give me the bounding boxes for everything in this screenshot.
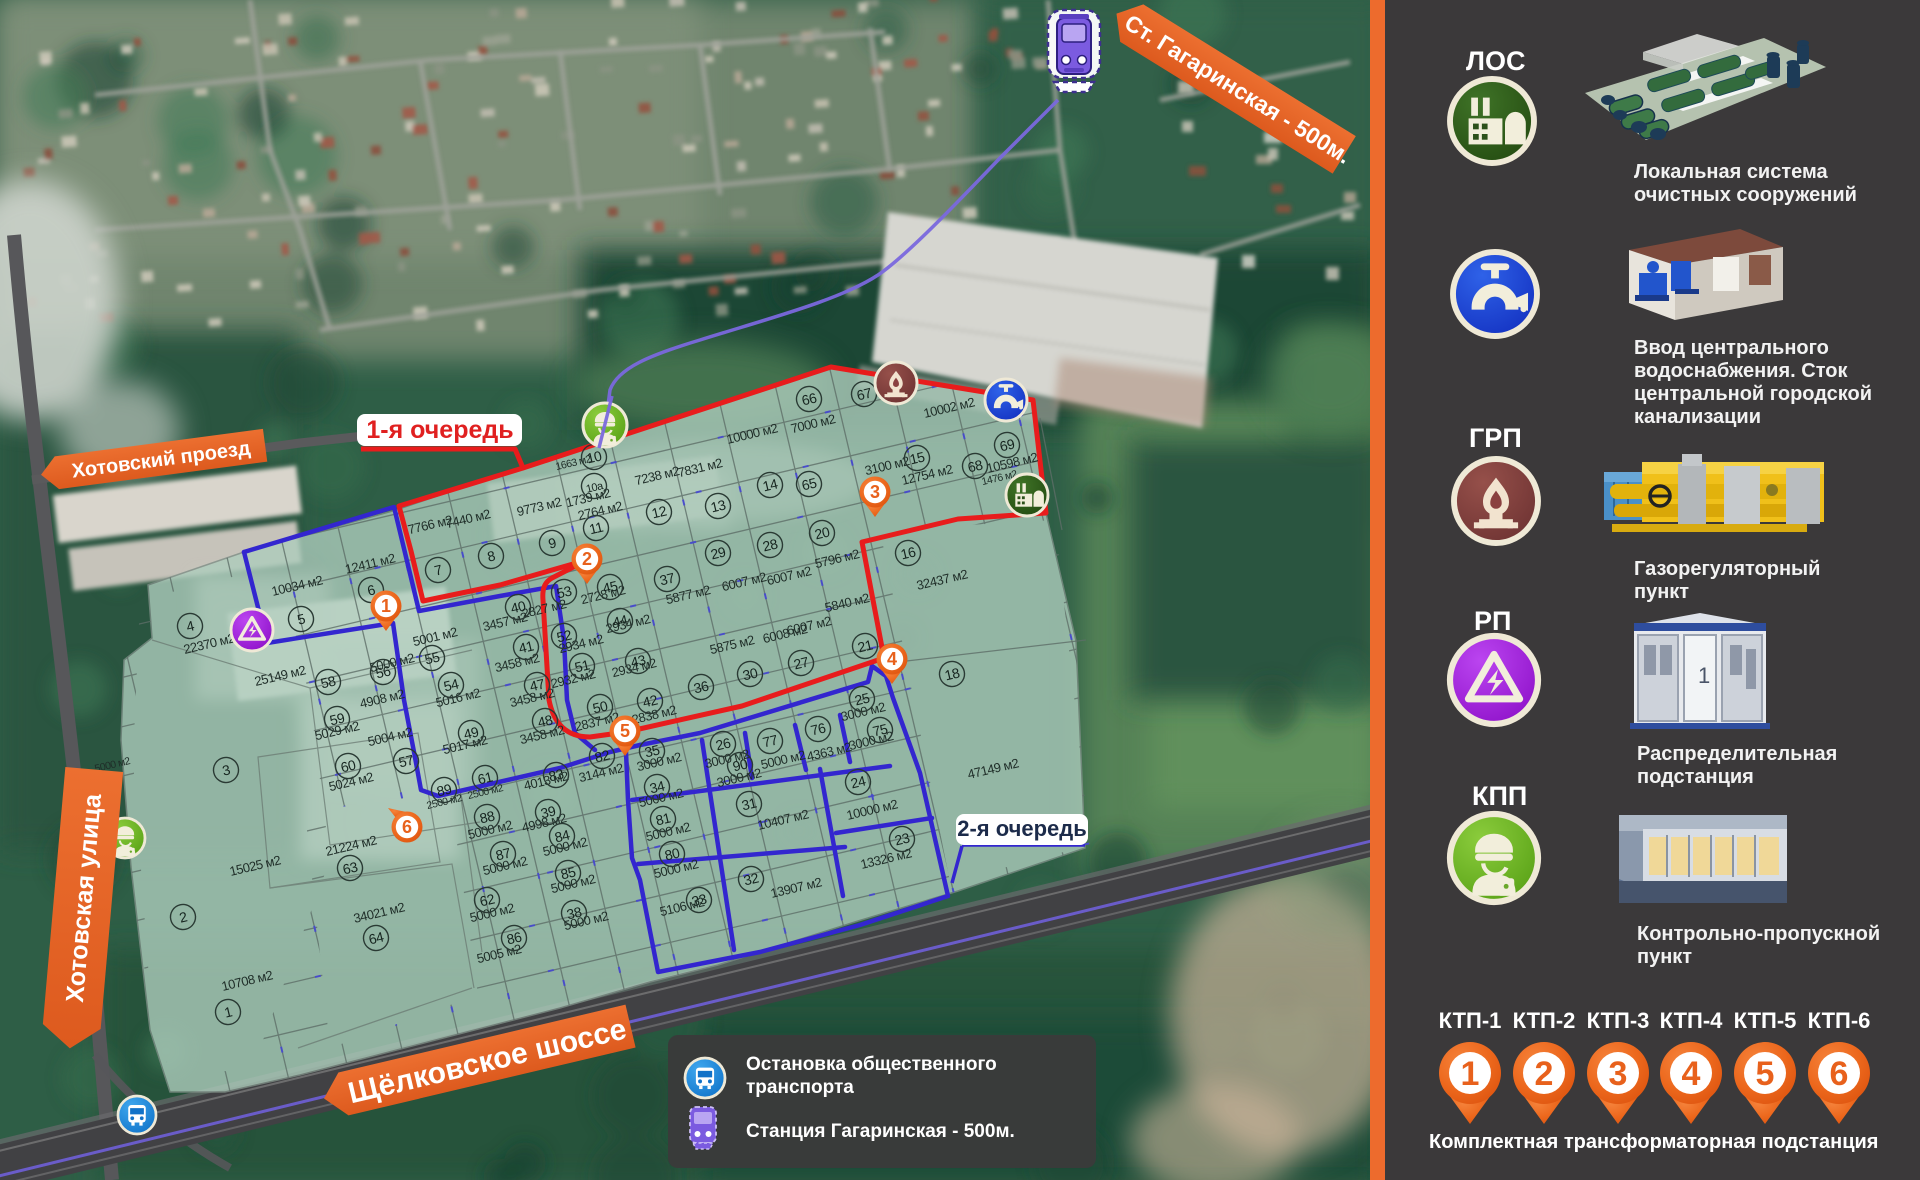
- svg-text:КТП-5: КТП-5: [1734, 1008, 1797, 1033]
- svg-text:КПП: КПП: [1472, 781, 1527, 811]
- svg-text:2-я очередь: 2-я очередь: [957, 816, 1087, 841]
- svg-text:6: 6: [402, 817, 412, 837]
- svg-text:Остановка общественного: Остановка общественного: [746, 1054, 997, 1075]
- svg-text:канализации: канализации: [1634, 406, 1761, 428]
- svg-text:очистных сооружений: очистных сооружений: [1634, 184, 1857, 206]
- svg-text:1: 1: [1698, 663, 1710, 688]
- svg-text:водоснабжения. Сток: водоснабжения. Сток: [1634, 360, 1848, 382]
- svg-text:пункт: пункт: [1637, 946, 1692, 968]
- svg-text:1: 1: [1461, 1055, 1480, 1093]
- svg-text:КТП-1: КТП-1: [1439, 1008, 1502, 1033]
- svg-text:Газорегуляторный: Газорегуляторный: [1634, 558, 1820, 580]
- svg-text:2: 2: [1535, 1055, 1554, 1093]
- svg-text:5: 5: [1756, 1055, 1775, 1093]
- svg-text:1: 1: [381, 596, 391, 616]
- svg-text:Распределительная: Распределительная: [1637, 743, 1837, 765]
- svg-text:Контрольно-пропускной: Контрольно-пропускной: [1637, 923, 1880, 945]
- svg-text:6: 6: [1830, 1055, 1849, 1093]
- svg-text:КТП-3: КТП-3: [1587, 1008, 1650, 1033]
- svg-text:РП: РП: [1474, 606, 1511, 636]
- svg-text:КТП-2: КТП-2: [1513, 1008, 1576, 1033]
- svg-text:3: 3: [1609, 1055, 1628, 1093]
- svg-text:транспорта: транспорта: [746, 1077, 854, 1098]
- svg-text:центральной городской: центральной городской: [1634, 383, 1872, 405]
- svg-text:подстанция: подстанция: [1637, 766, 1754, 788]
- svg-text:4: 4: [887, 649, 897, 669]
- svg-text:ГРП: ГРП: [1469, 423, 1522, 453]
- svg-text:3: 3: [870, 482, 880, 502]
- svg-text:5: 5: [620, 721, 630, 741]
- svg-text:4: 4: [1682, 1055, 1701, 1093]
- svg-text:ЛОС: ЛОС: [1466, 46, 1525, 76]
- svg-text:Локальная система: Локальная система: [1634, 161, 1829, 183]
- svg-text:Станция Гагаринская - 500м.: Станция Гагаринская - 500м.: [746, 1121, 1015, 1142]
- svg-text:2: 2: [582, 549, 592, 569]
- svg-text:КТП-6: КТП-6: [1808, 1008, 1871, 1033]
- svg-text:пункт: пункт: [1634, 581, 1689, 603]
- svg-text:Ввод центрального: Ввод центрального: [1634, 337, 1829, 359]
- svg-text:1-я очередь: 1-я очередь: [366, 416, 513, 444]
- svg-text:КТП-4: КТП-4: [1660, 1008, 1724, 1033]
- svg-text:Комплектная трансформаторная п: Комплектная трансформаторная подстанция: [1429, 1131, 1878, 1153]
